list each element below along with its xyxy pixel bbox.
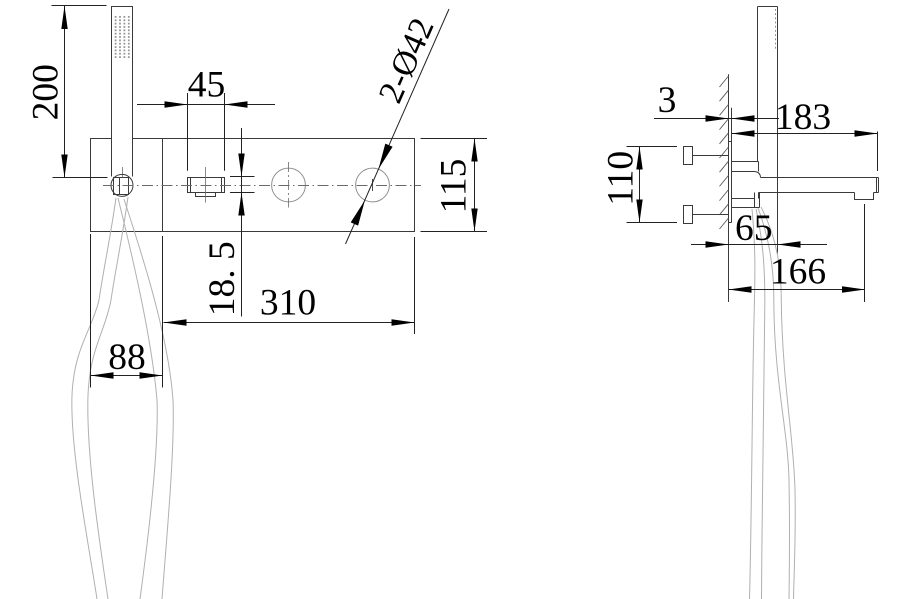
svg-text:88: 88 <box>108 337 146 378</box>
svg-text:45: 45 <box>188 65 226 106</box>
svg-text:310: 310 <box>260 283 316 324</box>
svg-text:115: 115 <box>434 159 475 214</box>
svg-text:2-Ø42: 2-Ø42 <box>371 13 441 109</box>
svg-text:110: 110 <box>600 151 641 206</box>
svg-text:18. 5: 18. 5 <box>202 241 243 316</box>
svg-text:65: 65 <box>735 208 773 249</box>
svg-text:3: 3 <box>658 80 677 121</box>
svg-text:183: 183 <box>775 97 831 138</box>
svg-text:166: 166 <box>770 252 826 293</box>
svg-text:200: 200 <box>26 64 67 120</box>
